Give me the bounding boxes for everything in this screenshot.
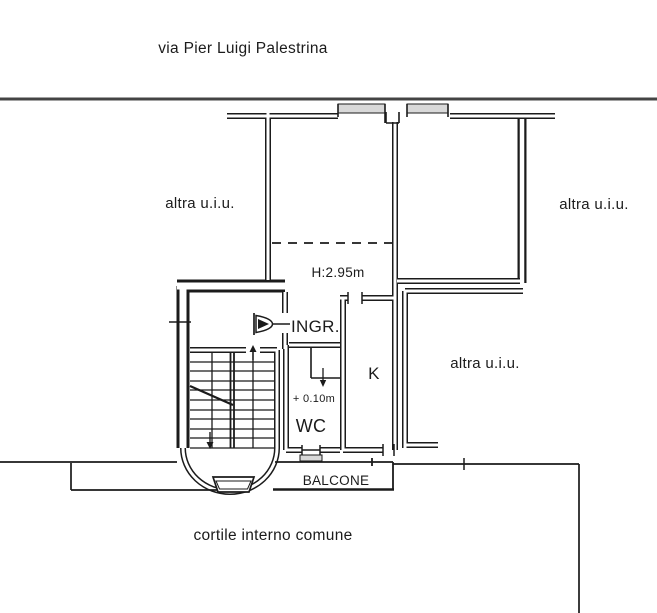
- entrance-label: INGR.: [291, 317, 340, 336]
- floor-plan-drawing: via Pier Luigi Palestrina altra u.i.u. a…: [0, 0, 657, 613]
- facade-windows: [338, 104, 448, 123]
- stair-up-arrow: [250, 345, 257, 360]
- other-unit-label-top-right: altra u.i.u.: [559, 196, 628, 213]
- stair-treads: [190, 352, 274, 448]
- window-icon: [407, 104, 448, 113]
- stair-tower-step: [213, 477, 254, 492]
- wc-window-sill: [300, 455, 322, 461]
- courtyard-label: cortile interno comune: [193, 527, 352, 544]
- window-icon: [338, 104, 385, 113]
- wc-inner-partition: [311, 348, 340, 387]
- other-unit-label-mid-right: altra u.i.u.: [450, 355, 519, 372]
- staircase: [190, 345, 274, 449]
- kitchen-label: K: [368, 364, 380, 383]
- balcony-label: BALCONE: [303, 473, 370, 488]
- wc-label: WC: [296, 416, 327, 436]
- ceiling-height-label: H:2.95m: [311, 265, 364, 280]
- level-offset-label: + 0.10m: [293, 393, 335, 405]
- street-label: via Pier Luigi Palestrina: [158, 40, 328, 57]
- other-unit-label-top-left: altra u.i.u.: [165, 195, 234, 212]
- entrance-door-icon: [254, 313, 290, 335]
- wc-door-arrow: [320, 380, 326, 387]
- floor-plan-page: via Pier Luigi Palestrina altra u.i.u. a…: [0, 0, 657, 613]
